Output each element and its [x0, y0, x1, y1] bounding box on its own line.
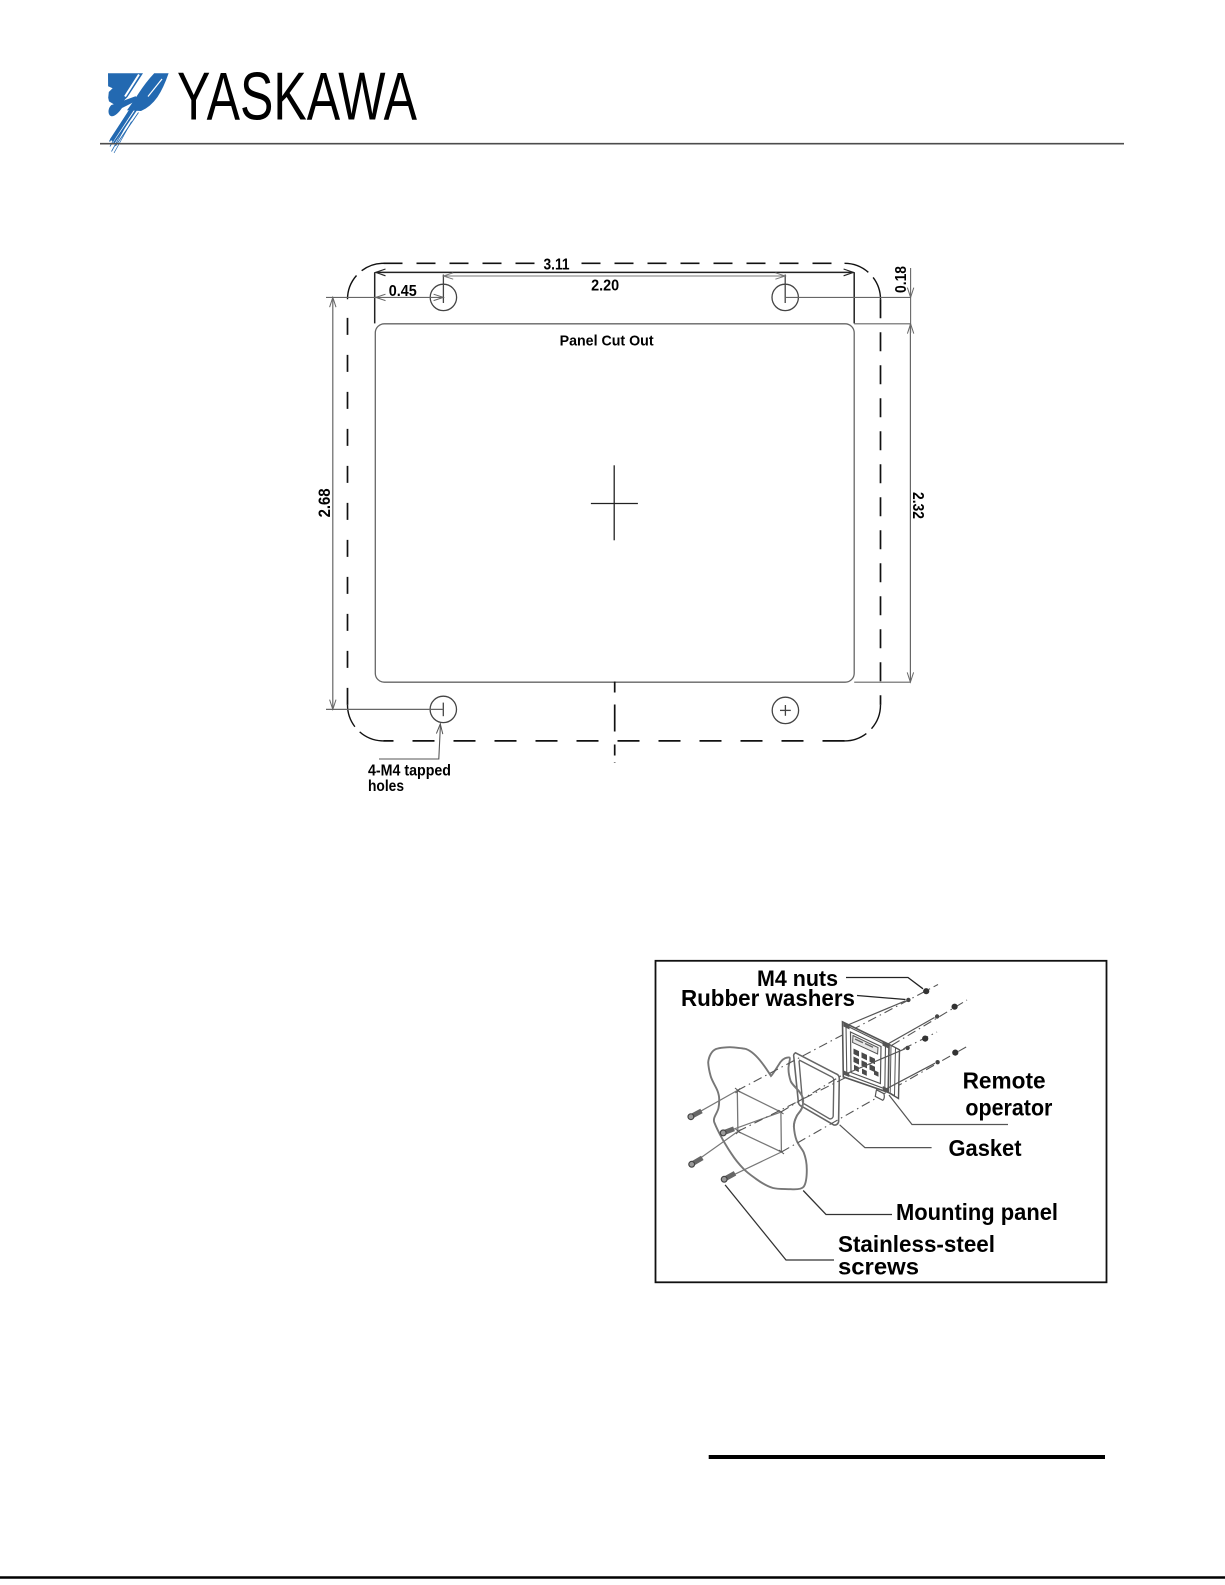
svg-text:Rubber washers: Rubber washers: [681, 985, 855, 1011]
svg-text:screws: screws: [838, 1253, 919, 1279]
svg-text:2.68: 2.68: [315, 488, 334, 517]
svg-text:YASKAWA: YASKAWA: [177, 58, 417, 134]
svg-text:Mounting panel: Mounting panel: [896, 1199, 1058, 1225]
svg-text:0.45: 0.45: [389, 283, 417, 300]
svg-text:Panel Cut Out: Panel Cut Out: [560, 333, 654, 350]
svg-text:Gasket: Gasket: [949, 1135, 1022, 1161]
svg-text:2.32: 2.32: [909, 492, 926, 519]
svg-text:3.11: 3.11: [544, 257, 570, 274]
svg-text:operator: operator: [965, 1095, 1052, 1121]
svg-text:2.20: 2.20: [591, 277, 619, 294]
svg-text:0.18: 0.18: [893, 266, 910, 293]
svg-text:holes: holes: [368, 778, 404, 795]
svg-text:Remote: Remote: [963, 1068, 1046, 1094]
